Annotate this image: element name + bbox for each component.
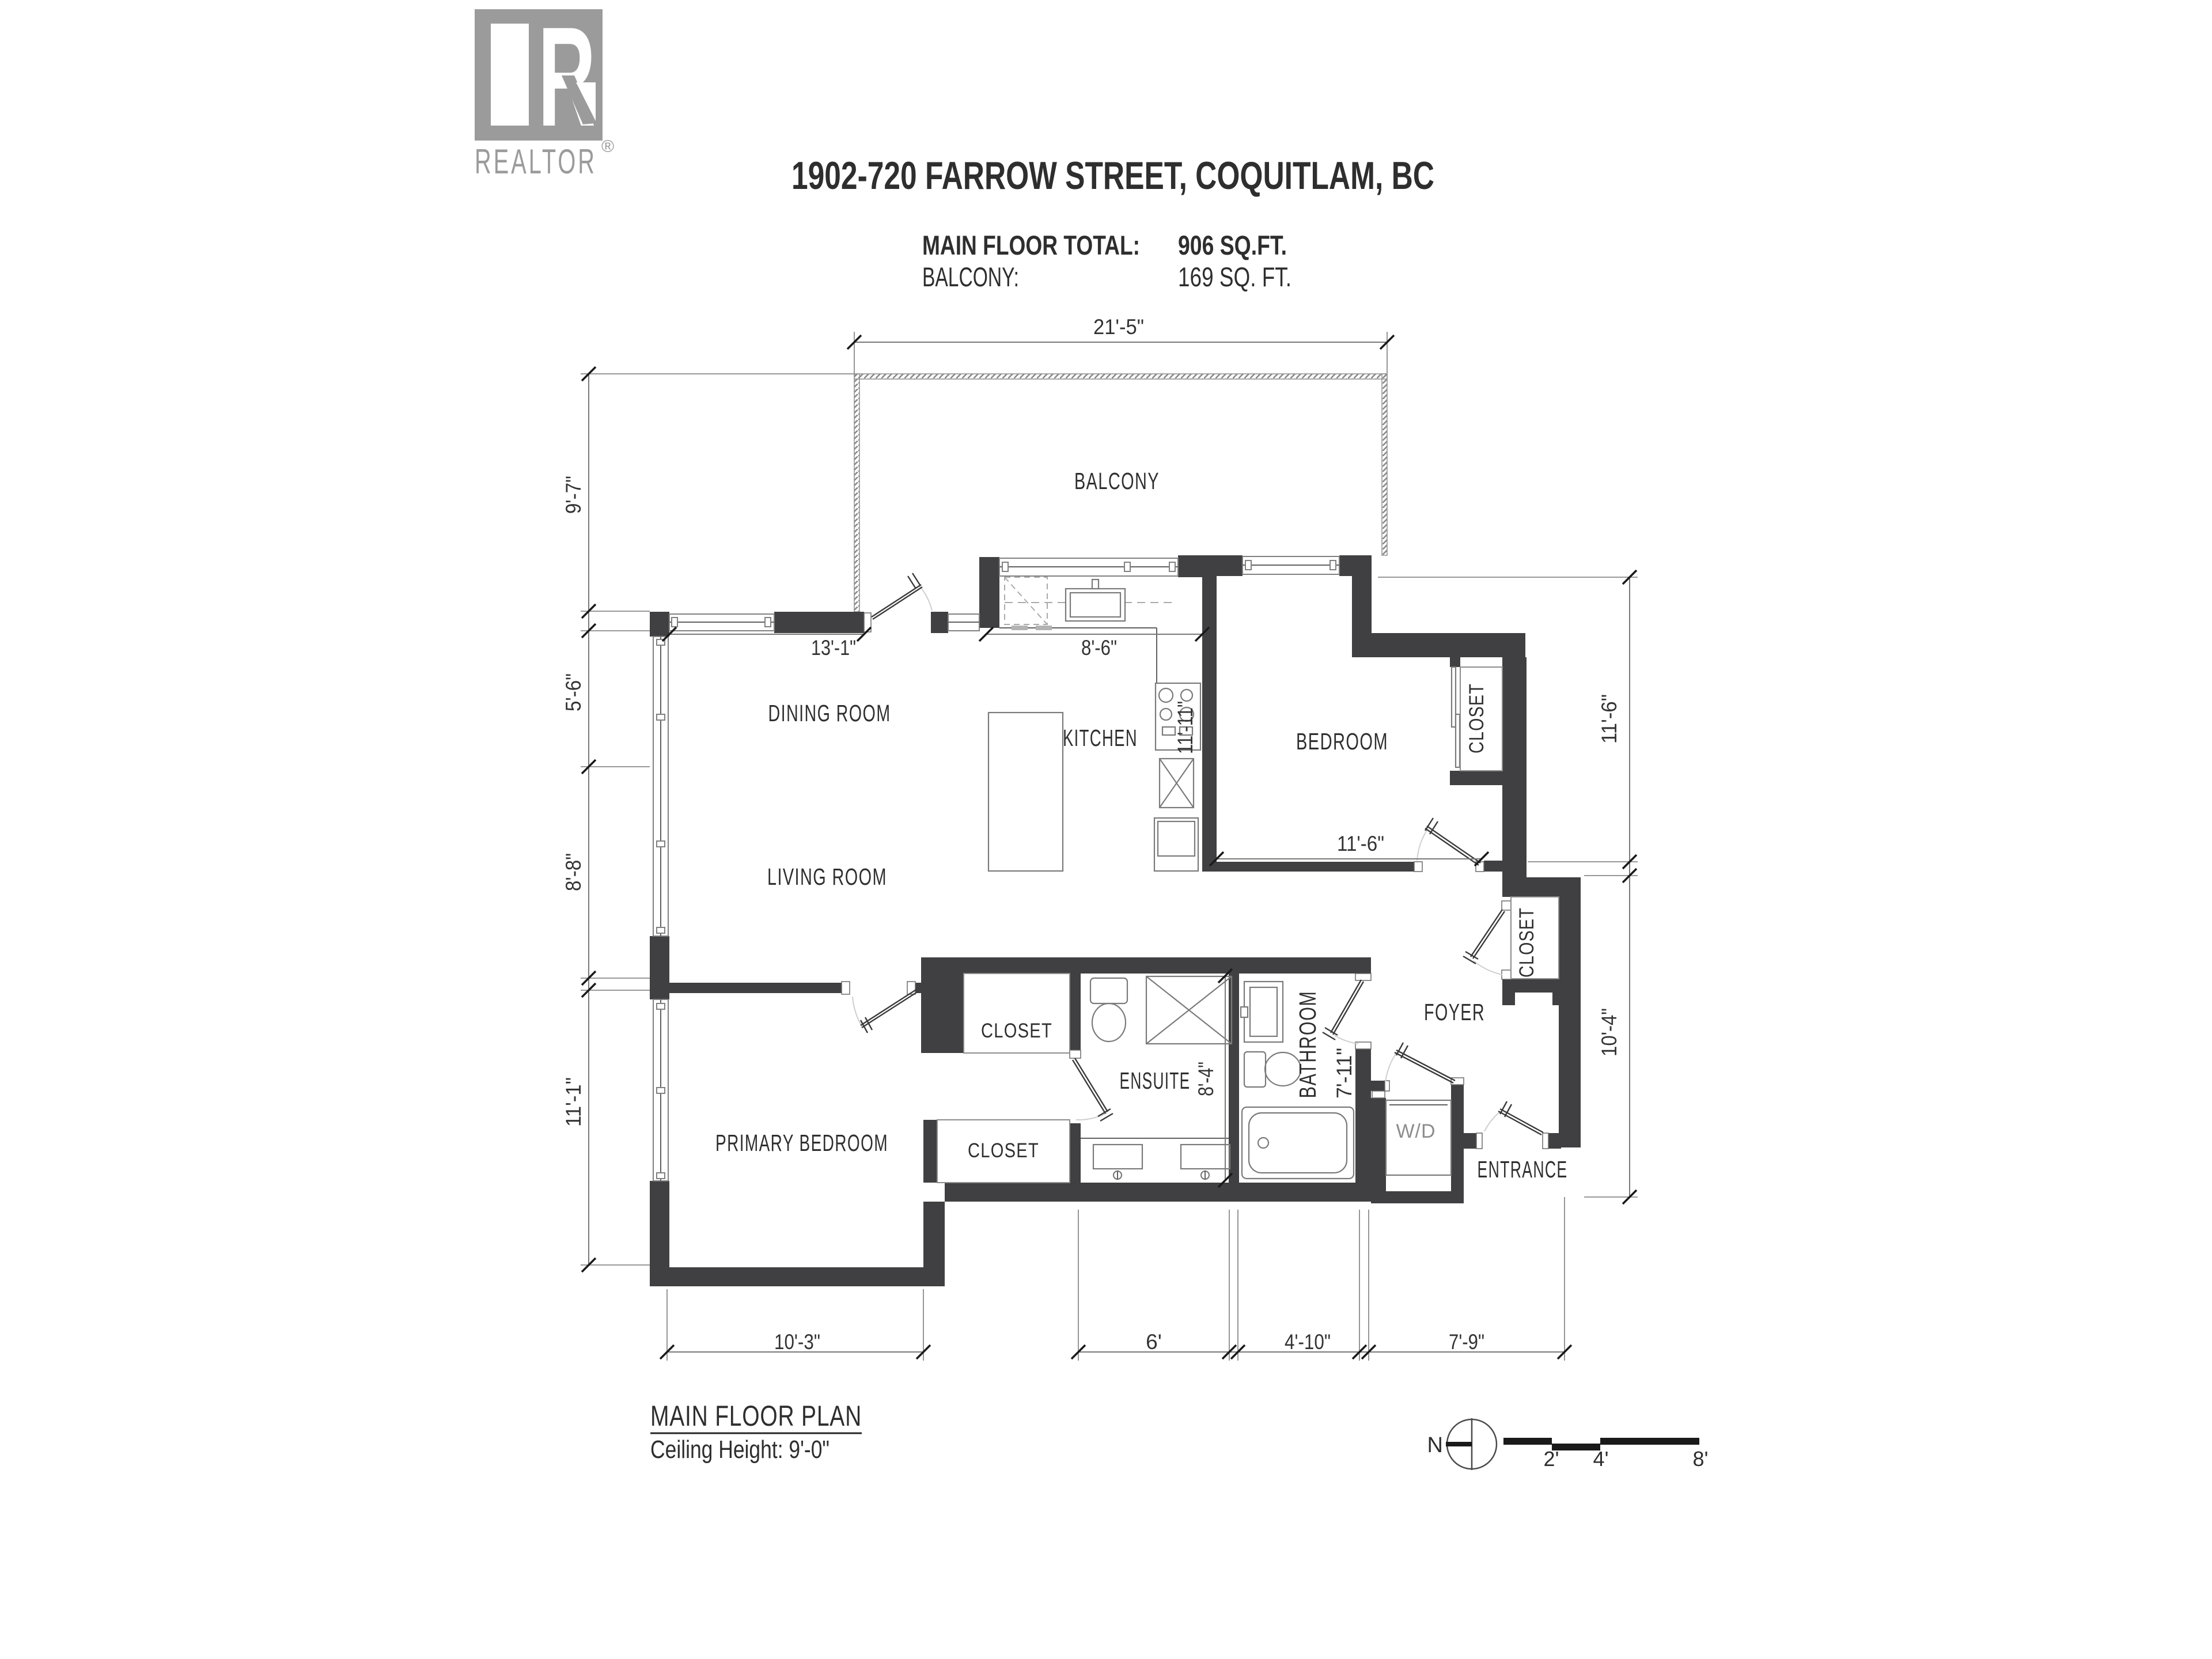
svg-text:BATHROOM: BATHROOM — [1294, 991, 1321, 1099]
svg-text:8'-8": 8'-8" — [562, 853, 585, 891]
svg-text:8'-6": 8'-6" — [1081, 636, 1117, 660]
svg-text:N: N — [1427, 1433, 1443, 1457]
svg-text:4'-10": 4'-10" — [1285, 1330, 1331, 1354]
svg-text:CLOSET: CLOSET — [968, 1139, 1039, 1162]
svg-text:LIVING ROOM: LIVING ROOM — [767, 863, 887, 890]
svg-text:Ceiling Height: 9'-0": Ceiling Height: 9'-0" — [650, 1435, 829, 1464]
svg-text:PRIMARY BEDROOM: PRIMARY BEDROOM — [715, 1130, 888, 1156]
svg-text:10'-4": 10'-4" — [1597, 1008, 1621, 1056]
svg-text:2': 2' — [1544, 1447, 1559, 1471]
svg-text:CLOSET: CLOSET — [981, 1020, 1052, 1042]
svg-text:11'-11": 11'-11" — [1173, 701, 1197, 754]
svg-text:1902-720 FARROW STREET, COQUIT: 1902-720 FARROW STREET, COQUITLAM, BC — [791, 154, 1434, 198]
svg-text:BALCONY: BALCONY — [1074, 468, 1160, 494]
svg-text:6': 6' — [1146, 1330, 1162, 1354]
svg-text:10'-3": 10'-3" — [774, 1330, 820, 1354]
svg-text:ENSUITE: ENSUITE — [1120, 1067, 1191, 1094]
svg-text:11'-6": 11'-6" — [1337, 832, 1384, 855]
svg-text:MAIN FLOOR PLAN: MAIN FLOOR PLAN — [650, 1400, 862, 1432]
svg-text:906 SQ.FT.: 906 SQ.FT. — [1178, 230, 1287, 260]
svg-text:11'-1": 11'-1" — [562, 1077, 585, 1127]
svg-text:MAIN FLOOR TOTAL:: MAIN FLOOR TOTAL: — [922, 230, 1140, 260]
svg-text:5'-6": 5'-6" — [562, 673, 585, 711]
svg-text:8': 8' — [1693, 1447, 1709, 1471]
svg-text:REALTOR: REALTOR — [475, 142, 597, 181]
svg-text:DINING ROOM: DINING ROOM — [768, 700, 891, 726]
svg-text:KITCHEN: KITCHEN — [1063, 725, 1138, 751]
svg-text:8'-4": 8'-4" — [1194, 1062, 1218, 1096]
svg-text:BEDROOM: BEDROOM — [1296, 728, 1388, 755]
svg-text:BALCONY:: BALCONY: — [922, 262, 1019, 292]
svg-text:21'-5": 21'-5" — [1093, 315, 1144, 339]
svg-text:7'-11": 7'-11" — [1332, 1048, 1356, 1099]
svg-text:CLOSET: CLOSET — [1516, 907, 1538, 978]
svg-text:13'-1": 13'-1" — [811, 636, 856, 660]
svg-text:4': 4' — [1593, 1447, 1609, 1471]
svg-text:®: ® — [601, 137, 614, 156]
svg-text:169 SQ. FT.: 169 SQ. FT. — [1178, 262, 1291, 292]
svg-text:9'-7": 9'-7" — [562, 476, 585, 514]
svg-text:11'-6": 11'-6" — [1597, 694, 1621, 744]
svg-text:W/D: W/D — [1396, 1120, 1435, 1142]
svg-text:CLOSET: CLOSET — [1465, 683, 1488, 753]
svg-text:FOYER: FOYER — [1424, 999, 1485, 1025]
svg-text:7'-9": 7'-9" — [1449, 1330, 1484, 1354]
svg-text:ENTRANCE: ENTRANCE — [1478, 1156, 1568, 1183]
